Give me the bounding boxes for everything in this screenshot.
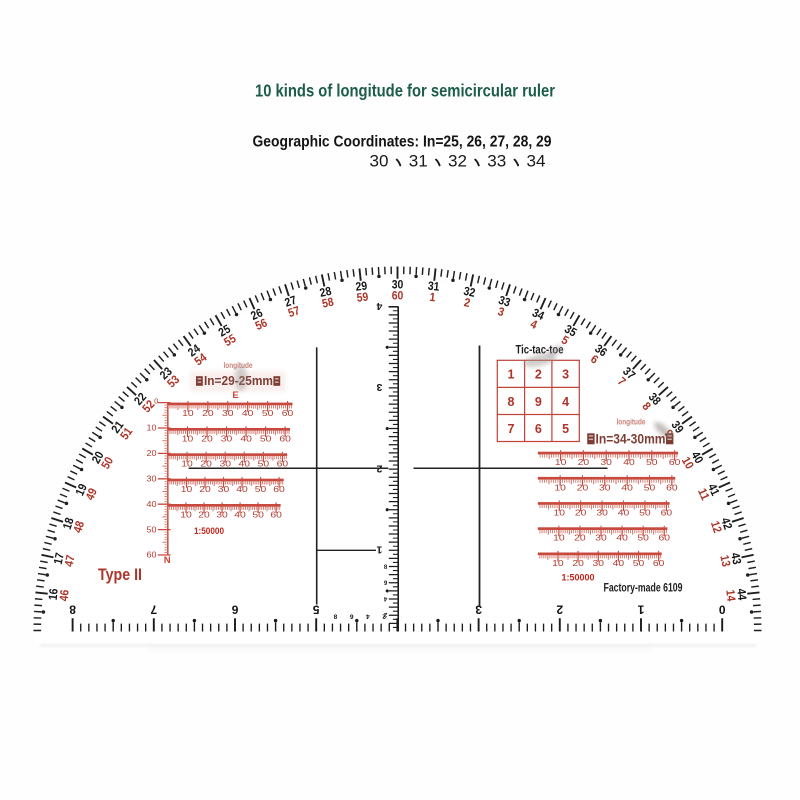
svg-text:40: 40 bbox=[242, 408, 254, 418]
svg-text:1: 1 bbox=[508, 368, 515, 382]
svg-text:20: 20 bbox=[572, 558, 584, 568]
svg-text:3: 3 bbox=[376, 381, 382, 393]
svg-text:1: 1 bbox=[376, 544, 382, 556]
svg-text:14: 14 bbox=[723, 589, 738, 602]
svg-text:60: 60 bbox=[661, 508, 673, 518]
svg-text:60: 60 bbox=[666, 482, 678, 492]
svg-text:40: 40 bbox=[623, 457, 635, 467]
svg-text:50: 50 bbox=[258, 459, 270, 469]
svg-text:20: 20 bbox=[201, 433, 213, 443]
svg-text:30: 30 bbox=[595, 533, 607, 543]
svg-text:31: 31 bbox=[409, 153, 428, 171]
svg-text:40: 40 bbox=[613, 558, 625, 568]
svg-text:8: 8 bbox=[508, 395, 515, 409]
svg-text:40: 40 bbox=[147, 500, 158, 509]
svg-text:10: 10 bbox=[181, 459, 193, 469]
svg-text:10: 10 bbox=[553, 508, 565, 518]
svg-text:4: 4 bbox=[366, 613, 370, 620]
svg-text:30: 30 bbox=[221, 433, 233, 443]
svg-text:60: 60 bbox=[277, 459, 289, 469]
svg-text:30: 30 bbox=[592, 558, 604, 568]
svg-text:40: 40 bbox=[234, 509, 246, 519]
svg-text:6: 6 bbox=[349, 613, 353, 620]
svg-text:30: 30 bbox=[218, 484, 230, 494]
svg-text:30: 30 bbox=[370, 153, 389, 171]
svg-text:46: 46 bbox=[57, 589, 72, 602]
svg-text:50: 50 bbox=[644, 482, 656, 492]
svg-text:60: 60 bbox=[669, 457, 681, 467]
svg-text:10: 10 bbox=[554, 482, 566, 492]
svg-text:40: 40 bbox=[239, 459, 251, 469]
svg-text:20: 20 bbox=[577, 482, 589, 492]
svg-text:30: 30 bbox=[596, 508, 608, 518]
svg-text:9: 9 bbox=[535, 395, 542, 409]
svg-text:60: 60 bbox=[270, 509, 282, 519]
svg-text:7: 7 bbox=[508, 422, 515, 436]
svg-text:30: 30 bbox=[147, 475, 158, 484]
svg-text:0: 0 bbox=[154, 396, 158, 405]
svg-text:50: 50 bbox=[633, 558, 645, 568]
svg-text:10: 10 bbox=[180, 509, 192, 519]
svg-text:5: 5 bbox=[562, 422, 569, 436]
svg-text:60: 60 bbox=[658, 533, 670, 543]
svg-text:40: 40 bbox=[621, 482, 633, 492]
svg-text:2: 2 bbox=[535, 368, 542, 382]
svg-text:33: 33 bbox=[487, 153, 506, 171]
svg-text:50: 50 bbox=[646, 457, 658, 467]
svg-text:40: 40 bbox=[618, 508, 630, 518]
svg-text:34: 34 bbox=[527, 153, 546, 171]
svg-text:20: 20 bbox=[578, 457, 590, 467]
svg-text:3: 3 bbox=[562, 368, 569, 382]
svg-text:20: 20 bbox=[199, 484, 211, 494]
svg-text:60: 60 bbox=[392, 288, 404, 302]
svg-text:60: 60 bbox=[273, 484, 285, 494]
svg-text:10: 10 bbox=[182, 433, 194, 443]
svg-text:10 kinds of longitude for semi: 10 kinds of longitude for semicircular r… bbox=[255, 81, 555, 101]
svg-text:30: 30 bbox=[219, 459, 231, 469]
svg-text:8: 8 bbox=[333, 613, 337, 620]
svg-text:5: 5 bbox=[313, 603, 320, 617]
svg-text:Factory-made 6109: Factory-made 6109 bbox=[604, 580, 683, 594]
svg-text:6: 6 bbox=[231, 603, 238, 617]
svg-text:longitude: longitude bbox=[617, 418, 646, 427]
svg-text:50: 50 bbox=[252, 509, 264, 519]
svg-text:10: 10 bbox=[182, 408, 194, 418]
svg-text:1:50000: 1:50000 bbox=[194, 526, 224, 537]
svg-text:20: 20 bbox=[202, 408, 214, 418]
svg-text:7: 7 bbox=[150, 603, 157, 617]
svg-text:20: 20 bbox=[200, 459, 212, 469]
svg-text:60: 60 bbox=[147, 551, 158, 560]
svg-text:4: 4 bbox=[376, 300, 382, 312]
svg-text:2: 2 bbox=[556, 603, 563, 617]
svg-text:30: 30 bbox=[599, 482, 611, 492]
svg-text:In=34-30mm: In=34-30mm bbox=[596, 430, 666, 446]
svg-text:40: 40 bbox=[616, 533, 628, 543]
svg-text:6: 6 bbox=[535, 422, 542, 436]
svg-text:60: 60 bbox=[653, 558, 665, 568]
svg-text:N: N bbox=[164, 555, 171, 566]
svg-text:8: 8 bbox=[69, 603, 76, 617]
svg-text:10: 10 bbox=[181, 484, 193, 494]
svg-text:10: 10 bbox=[553, 533, 565, 543]
svg-text:Type II: Type II bbox=[98, 566, 142, 584]
svg-text:50: 50 bbox=[637, 533, 649, 543]
svg-text:20: 20 bbox=[198, 509, 210, 519]
svg-text:60: 60 bbox=[279, 433, 291, 443]
svg-text:30: 30 bbox=[222, 408, 234, 418]
svg-text:20: 20 bbox=[575, 508, 587, 518]
svg-text:30: 30 bbox=[216, 509, 228, 519]
svg-text:1:50000: 1:50000 bbox=[562, 573, 595, 583]
svg-text:60: 60 bbox=[282, 408, 294, 418]
svg-text:50: 50 bbox=[147, 525, 158, 534]
svg-text:3: 3 bbox=[475, 603, 482, 617]
svg-text:20: 20 bbox=[147, 449, 158, 458]
svg-text:50: 50 bbox=[260, 433, 272, 443]
svg-text:0: 0 bbox=[719, 603, 726, 617]
svg-text:30: 30 bbox=[600, 457, 612, 467]
svg-text:40: 40 bbox=[240, 433, 252, 443]
svg-text:59: 59 bbox=[356, 290, 369, 305]
svg-text:1: 1 bbox=[637, 603, 644, 617]
svg-text:Geographic Coordinates: In=25,: Geographic Coordinates: In=25, 26, 27, 2… bbox=[253, 134, 552, 151]
svg-text:40: 40 bbox=[236, 484, 248, 494]
svg-text:4: 4 bbox=[562, 395, 569, 409]
svg-text:E: E bbox=[232, 390, 238, 401]
svg-text:50: 50 bbox=[262, 408, 274, 418]
svg-text:10: 10 bbox=[552, 558, 564, 568]
svg-text:50: 50 bbox=[639, 508, 651, 518]
svg-text:10: 10 bbox=[147, 424, 158, 433]
svg-text:50: 50 bbox=[255, 484, 267, 494]
svg-text:10: 10 bbox=[555, 457, 567, 467]
svg-text:20: 20 bbox=[574, 533, 586, 543]
svg-text:32: 32 bbox=[448, 153, 467, 171]
